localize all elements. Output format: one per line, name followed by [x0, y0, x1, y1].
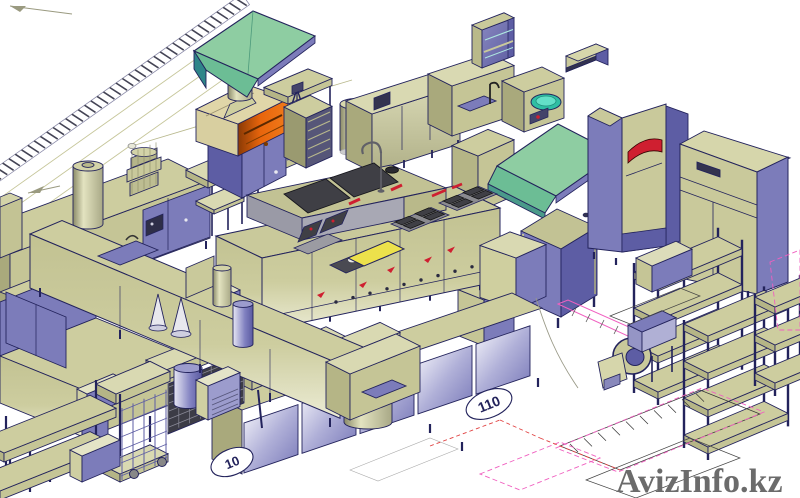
svg-text:AvizInfo.kz: AvizInfo.kz: [616, 463, 783, 498]
